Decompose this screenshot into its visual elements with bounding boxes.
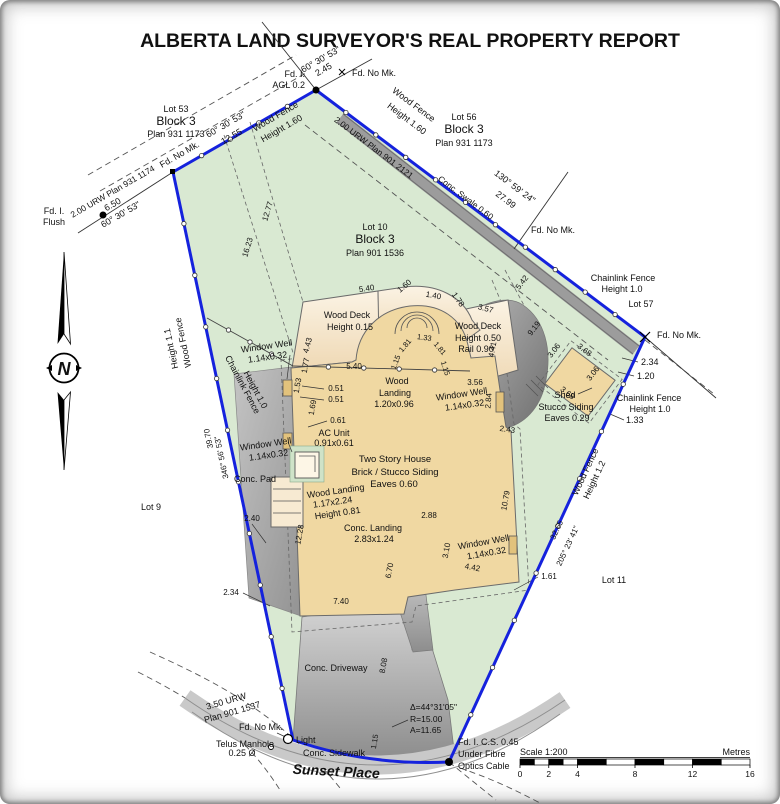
telus-2: 0.25 Ø <box>228 748 255 758</box>
scale-tick-0: 0 <box>518 769 523 779</box>
fd-no-mk-s: Fd. No Mk. <box>239 722 283 732</box>
scale-tick-4: 4 <box>575 769 580 779</box>
fics-2: Under Fibre <box>458 749 506 759</box>
survey-drawing: ALBERTA LAND SURVEYOR'S REAL PROPERTY RE… <box>0 0 780 804</box>
scale-units: Metres <box>722 747 750 757</box>
dim-288: 2.88 <box>421 511 437 520</box>
lot56-block: Block 3 <box>444 122 484 136</box>
dim-161: 1.61 <box>541 572 557 581</box>
shed-3: Eaves 0.29 <box>544 413 589 423</box>
house-2: Brick / Stucco Siding <box>351 467 438 478</box>
light-label: Light <box>296 735 316 745</box>
dim-061: 0.61 <box>330 416 346 425</box>
house-3: Eaves 0.60 <box>370 479 418 490</box>
scale-tick-2: 2 <box>546 769 551 779</box>
wood-deck-r2: Height 0.50 <box>455 333 501 343</box>
window-well-bottom <box>509 536 517 554</box>
lot56-plan: Plan 931 1173 <box>435 138 492 148</box>
lot53-block: Block 3 <box>156 114 196 128</box>
dim-284: 2.84 <box>483 392 493 409</box>
dim-740: 7.40 <box>333 597 349 606</box>
curve-delta: Δ=44°31'05" <box>410 702 457 712</box>
dim-234e: 2.34 <box>641 357 659 367</box>
conc-sidewalk: Conc. Sidewalk <box>303 748 366 758</box>
lot56-name: Lot 56 <box>451 112 476 122</box>
survey-report-page: ALBERTA LAND SURVEYOR'S REAL PROPERTY RE… <box>0 0 780 804</box>
wood-deck-l1: Wood Deck <box>324 310 371 320</box>
clf-ne-1: Chainlink Fence <box>591 273 656 283</box>
wood-landing-2: Landing <box>379 388 411 398</box>
wood-landing-1: Wood <box>385 376 408 386</box>
fd-no-mk-top: Fd. No Mk. <box>352 68 396 78</box>
ac-unit <box>290 446 324 482</box>
monument-fd-i-agl <box>313 87 320 94</box>
house-1: Two Story House <box>359 454 431 465</box>
lot11: Lot 11 <box>602 575 626 585</box>
fics-3: Optics Cable <box>458 761 510 771</box>
page-title: ALBERTA LAND SURVEYOR'S REAL PROPERTY RE… <box>140 30 680 52</box>
fd-no-mk-e: Fd. No Mk. <box>657 330 701 340</box>
monument-fd-i-cs <box>445 758 453 766</box>
scale-label: Scale 1:200 <box>520 747 568 757</box>
scale-bar: Scale 1:200 Metres 02481216 <box>518 747 755 779</box>
scale-tick-12: 12 <box>688 769 698 779</box>
clf-ne-2: Height 1.0 <box>601 284 642 294</box>
monument-x-tie <box>339 69 345 75</box>
north-arrow: N <box>46 252 82 470</box>
window-well-left-1 <box>283 380 292 396</box>
lot57: Lot 57 <box>628 299 653 309</box>
lot10-block: Block 3 <box>355 232 395 246</box>
street-name: Sunset Place <box>292 761 380 782</box>
window-well-right <box>496 392 504 412</box>
conc-landing-2: 2.83x1.24 <box>354 534 394 544</box>
fd-i-agl-2: AGL 0.2 <box>272 80 305 90</box>
lot53-plan: Plan 931 1173 <box>147 129 204 139</box>
fd-i-flush-1: Fd. I. <box>44 206 65 216</box>
conc-landing-1: Conc. Landing <box>344 523 402 533</box>
lot9: Lot 9 <box>141 502 161 512</box>
dim-540b: 5.40 <box>346 362 362 371</box>
curve-r: R=15.00 <box>410 714 443 724</box>
wood-landing-west <box>271 477 303 527</box>
dim-051a: 0.51 <box>328 384 344 393</box>
lot10-plan: Plan 901 1536 <box>346 248 404 258</box>
dim-120: 1.20 <box>637 371 655 381</box>
dim-234w: 2.34 <box>223 588 239 597</box>
dim-133: 1.33 <box>626 415 644 425</box>
fics-1: Fd. I. C.S. 0.45 <box>458 737 519 747</box>
wood-deck-r1: Wood Deck <box>455 321 502 331</box>
north-letter: N <box>58 359 72 379</box>
wood-landing-3: 1.20x0.96 <box>374 399 414 409</box>
light-symbol <box>284 735 293 744</box>
dim-051b: 0.51 <box>328 395 344 404</box>
monument-corner-w <box>170 169 175 174</box>
lot10-name: Lot 10 <box>362 222 387 232</box>
wood-deck-l2: Height 0.15 <box>327 322 373 332</box>
lot53-name: Lot 53 <box>163 104 188 114</box>
fd-no-mk-5657: Fd. No Mk. <box>531 225 575 235</box>
ac-unit-2: 0.91x0.61 <box>314 438 354 448</box>
clf-e-1: Chainlink Fence <box>617 393 682 403</box>
fd-i-flush-2: Flush <box>43 217 65 227</box>
w-bearing: 346° 56' 53" <box>213 435 231 479</box>
dim-240: 2.40 <box>244 514 260 523</box>
ac-unit-1: AC Unit <box>318 428 350 438</box>
clf-e-2: Height 1.0 <box>629 404 670 414</box>
conc-pad: Conc. Pad <box>234 474 276 484</box>
shed-2: Stucco Siding <box>538 402 593 412</box>
scale-tick-16: 16 <box>745 769 755 779</box>
curve-a: A=11.65 <box>410 725 442 735</box>
scale-tick-8: 8 <box>633 769 638 779</box>
conc-driveway: Conc. Driveway <box>304 663 368 673</box>
